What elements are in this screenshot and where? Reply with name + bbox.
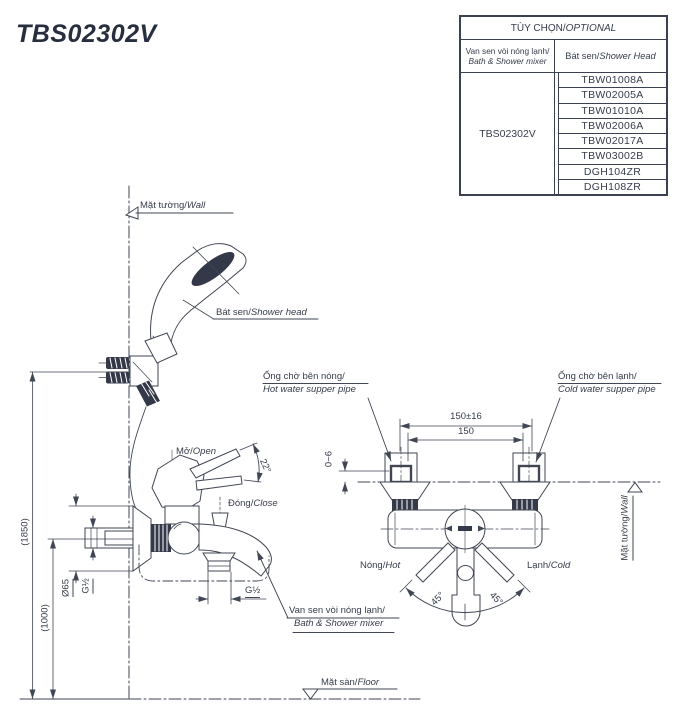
dim-inlet-thread: G½ <box>81 578 94 593</box>
dim-wall-protrusion: 0~6 <box>324 451 335 467</box>
mixer-label: Van sen vòi nóng lạnh/ Bath & Shower mix… <box>289 604 385 630</box>
shower-head-list: TBW01008A TBW02005A TBW01010A TBW02006A … <box>555 73 666 194</box>
spec-sheet: TBS02302V Mặt tường/Wall Bát sen/Shower … <box>0 0 675 726</box>
column-header-mixer: Van sen vòi nóng lạnh/ Bath & Shower mix… <box>461 40 555 72</box>
spout-aerator <box>203 553 235 561</box>
wall-marker-right <box>628 483 642 493</box>
dim-1850: (1850) <box>20 518 31 545</box>
shower-head-option: TBW03002B <box>559 148 666 163</box>
page-title: TBS02302V <box>16 20 157 49</box>
shower-head-option: TBW01008A <box>559 73 666 87</box>
cold-label: Lạnh/Cold <box>527 559 570 572</box>
floor-label: Mặt sàn/Floor <box>321 676 379 689</box>
handle-hot <box>416 543 455 582</box>
mixer-valve-front-view <box>380 482 550 626</box>
hot-pipe-label: Ống chờ bên nóng/ Hot water supper pipe <box>263 370 356 396</box>
open-label: Mở/Open <box>176 445 216 458</box>
shower-head-label: Bát sen/Shower head <box>216 306 307 319</box>
dim-flange-diameter: Ø65 <box>61 579 74 597</box>
mixer-model-cell: TBS02302V <box>461 73 555 194</box>
options-table-header: TÙY CHỌN/OPTIONAL <box>461 17 666 40</box>
mixer-valve-side-view <box>85 506 271 581</box>
dim-150-tolerance: 150±16 <box>430 411 502 422</box>
shower-head-option: TBW02017A <box>559 133 666 148</box>
shower-head-option: DGH104ZR <box>559 164 666 179</box>
dim-1000: (1000) <box>40 604 51 631</box>
shower-holder-bracket <box>99 333 177 386</box>
floor-marker <box>303 689 318 699</box>
cold-pipe-label: Ống chờ bên lạnh/ Cold water supper pipe <box>558 370 656 396</box>
floor-line <box>20 689 420 699</box>
dim-150: 150 <box>430 426 502 437</box>
wall-label-left: Mặt tường/Wall <box>140 199 205 212</box>
column-header-shower-head: Bát sen/Shower Head <box>555 40 666 72</box>
close-label: Đóng/Close <box>228 497 278 510</box>
wall-label-right: Mặt tường/Wall <box>619 495 634 560</box>
hot-label: Nóng/Hot <box>360 559 400 572</box>
shower-head-option: DGH108ZR <box>559 179 666 194</box>
handle-cold <box>475 543 514 582</box>
dim-spout-thread: G½ <box>245 585 260 598</box>
shower-head-option: TBW02006A <box>559 118 666 133</box>
shower-head-drawing <box>151 244 318 353</box>
shower-head-option: TBW02005A <box>559 87 666 102</box>
shower-head-option: TBW01010A <box>559 103 666 118</box>
options-table: TÙY CHỌN/OPTIONAL Van sen vòi nóng lạnh/… <box>459 15 668 196</box>
